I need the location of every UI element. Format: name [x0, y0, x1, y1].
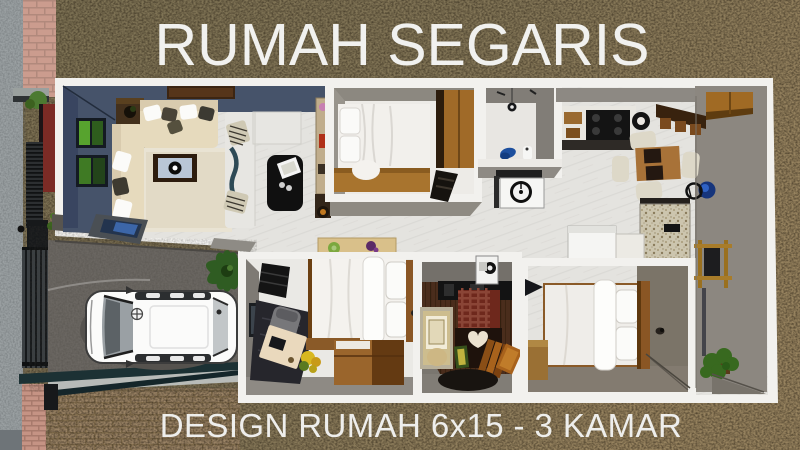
svg-text:RUMAH SEGARIS: RUMAH SEGARIS [154, 12, 649, 78]
svg-text:DESIGN RUMAH 6x15 - 3 KAMAR: DESIGN RUMAH 6x15 - 3 KAMAR [160, 407, 682, 444]
